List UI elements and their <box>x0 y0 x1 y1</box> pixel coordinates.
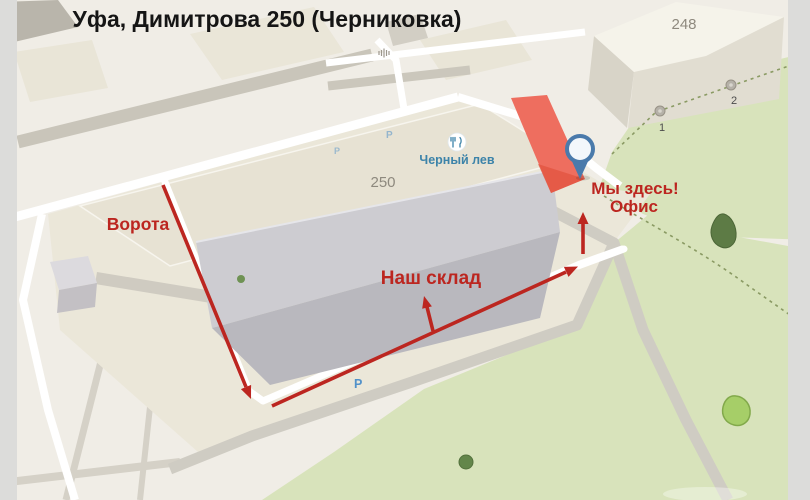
entrance-marker-1-label: 1 <box>659 122 665 134</box>
map-screenshot: 1 2 P P P Черный лев 250 248 <box>0 0 810 500</box>
parking-icon-faint: P <box>386 130 393 141</box>
entrance-marker-2-label: 2 <box>731 95 737 107</box>
left-edge-strip <box>0 0 17 500</box>
label-gates: Ворота <box>107 214 170 234</box>
label-here-line2: Офис <box>610 197 658 216</box>
building-248-number: 248 <box>671 16 696 33</box>
entrance-marker-1-dot <box>658 109 662 113</box>
label-here-line1: Мы здесь! <box>591 179 678 198</box>
tree-small <box>459 455 473 469</box>
right-edge-strip <box>788 0 810 500</box>
entrance-marker-2-dot <box>729 83 733 87</box>
page-title: Уфа, Димитрова 250 (Черниковка) <box>73 6 462 32</box>
tree-light <box>723 396 751 426</box>
building-250-number: 250 <box>370 174 395 191</box>
map-canvas[interactable]: 1 2 P P P Черный лев 250 248 <box>0 0 810 500</box>
pin-shadow <box>576 176 590 181</box>
restaurant-icon[interactable] <box>448 133 466 151</box>
parking-icon: P <box>354 377 362 391</box>
parking-icon-faint: P <box>334 146 340 156</box>
bush <box>237 275 245 283</box>
pin-body <box>567 136 593 162</box>
poi-cafe-label[interactable]: Черный лев <box>419 153 494 167</box>
label-warehouse: Наш склад <box>381 268 481 289</box>
